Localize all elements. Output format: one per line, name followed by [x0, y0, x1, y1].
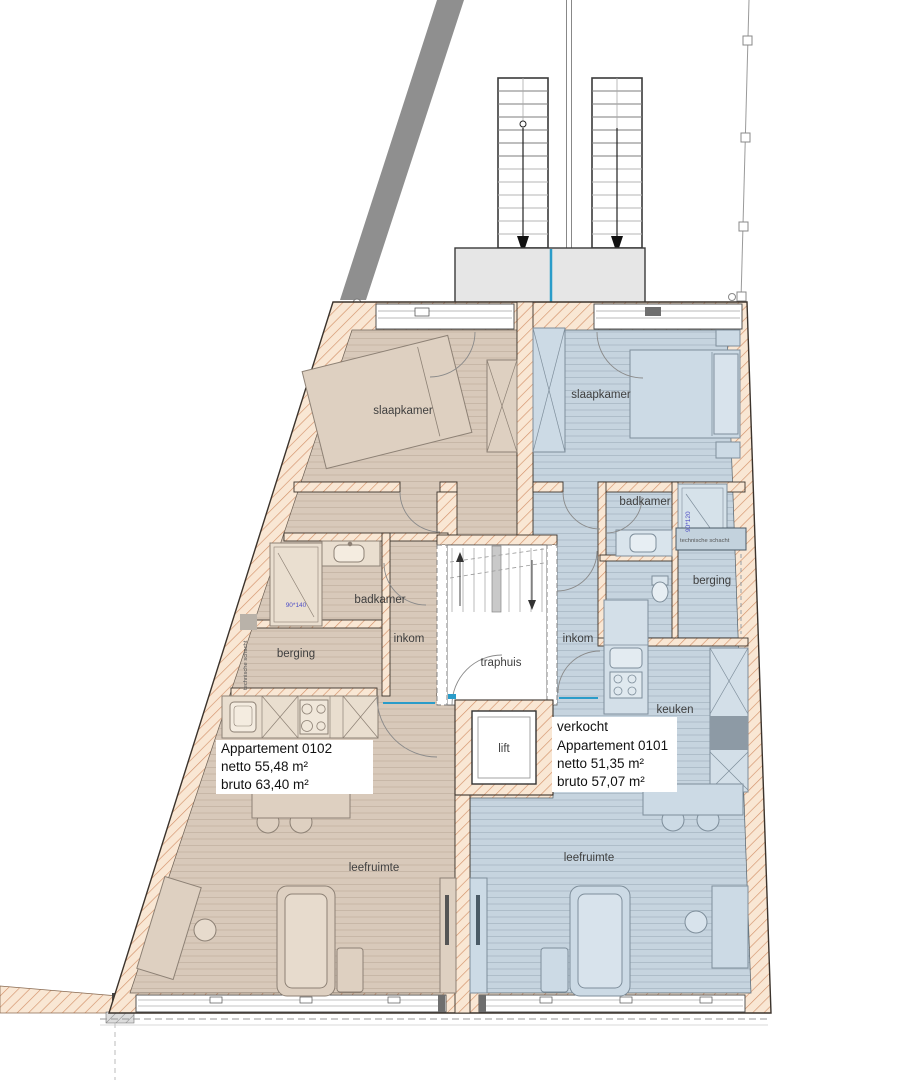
room-label-badkamer-0101: badkamer — [619, 496, 670, 508]
tall-kitchen-units — [710, 648, 748, 792]
boundary-post-markers — [729, 36, 753, 301]
room-label-inkom-0101: inkom — [563, 633, 594, 645]
floor-plan-drawing: slaapkamer badkamer berging inkom leefru… — [0, 0, 909, 1080]
shaft-block — [240, 614, 257, 630]
apartment-0101-netto: netto 51,35 m² — [557, 756, 645, 771]
room-label-berging-0101: berging — [693, 575, 731, 587]
top-window-0102 — [376, 304, 514, 329]
apartment-0102-bruto: bruto 63,40 m² — [221, 777, 309, 792]
tv-sideboard — [440, 878, 456, 993]
bottom-window-band-0102 — [136, 995, 446, 1012]
shower — [270, 543, 322, 626]
neighbor-wall-strip — [0, 986, 118, 1013]
apartment-0102-info: Appartement 0102 netto 55,48 m² bruto 63… — [216, 740, 373, 794]
exterior-stairs — [455, 0, 645, 305]
room-label-slaapkamer-0101: slaapkamer — [571, 389, 631, 401]
corridor-wall-0102 — [437, 492, 457, 535]
stair-flight-left — [498, 78, 548, 254]
traphuis-wall-east — [547, 545, 557, 705]
room-label-inkom-0102: inkom — [394, 633, 425, 645]
shaft-label-0101: technische schacht — [680, 538, 730, 544]
lift-label: lift — [498, 743, 510, 755]
shower-dim-0102: 90*140 — [286, 602, 307, 609]
room-label-badkamer-0102: badkamer — [354, 594, 405, 606]
core-top-wall — [437, 535, 557, 545]
wardrobe — [487, 360, 517, 452]
neighbor-wall-band — [340, 0, 464, 300]
cooktop — [610, 672, 642, 698]
room-label-leefruimte-0101: leefruimte — [564, 852, 615, 864]
apartment-0102-netto: netto 55,48 m² — [221, 759, 309, 774]
stair-core — [437, 545, 557, 795]
apartment-0101-bruto: bruto 57,07 m² — [557, 774, 645, 789]
top-window-0101 — [594, 304, 742, 329]
room-label-keuken-0101: keuken — [656, 704, 693, 716]
apartment-0102-name: Appartement 0102 — [221, 741, 332, 756]
bottom-window-band-0101 — [479, 995, 745, 1012]
stair-flight-right — [592, 78, 642, 254]
shower-dim-0101: 90*120 — [685, 511, 692, 532]
storage-inkom-wall-0102 — [382, 533, 390, 696]
apartment-0101-info: verkocht Appartement 0101 netto 51,35 m²… — [552, 717, 677, 792]
side-table — [541, 948, 568, 992]
core-blue-marker — [448, 694, 456, 699]
toilet — [652, 576, 668, 602]
kitchen-counter — [604, 600, 648, 714]
bathroom-sink — [322, 541, 380, 566]
tv-sideboard — [470, 878, 487, 993]
floor-plan-page: slaapkamer badkamer berging inkom leefru… — [0, 0, 909, 1080]
traphuis-label: traphuis — [481, 657, 522, 669]
bedroom-wall-0102-b — [440, 482, 457, 492]
side-table — [337, 948, 363, 992]
nightstand — [716, 442, 740, 458]
traphuis-wall-west — [437, 545, 447, 705]
room-label-leefruimte-0102: leefruimte — [349, 862, 400, 874]
bedroom-wall-0101-a — [533, 482, 563, 492]
shaft-label-0102: technische schacht — [243, 640, 249, 690]
apartment-0101-name: Appartement 0101 — [557, 738, 668, 753]
kitchen-sink — [610, 648, 642, 668]
apartment-0101-status: verkocht — [557, 719, 608, 734]
bathroom-top-wall-0102 — [284, 533, 448, 541]
room-label-slaapkamer-0102: slaapkamer — [373, 405, 433, 417]
room-label-berging-0102: berging — [277, 648, 315, 660]
wardrobe — [533, 328, 565, 452]
party-wall-bottom — [455, 795, 470, 1013]
bathroom-sink — [616, 530, 672, 556]
fridge-block — [710, 716, 748, 750]
nightstand — [716, 330, 740, 346]
kitchen-counter — [222, 696, 378, 738]
storage-bottom-wall-0102 — [231, 688, 377, 696]
party-wall-top — [517, 302, 533, 545]
cooktop — [300, 700, 328, 734]
bath-storage-wall-0101 — [672, 482, 678, 640]
bedroom-wall-0102-a — [294, 482, 400, 492]
